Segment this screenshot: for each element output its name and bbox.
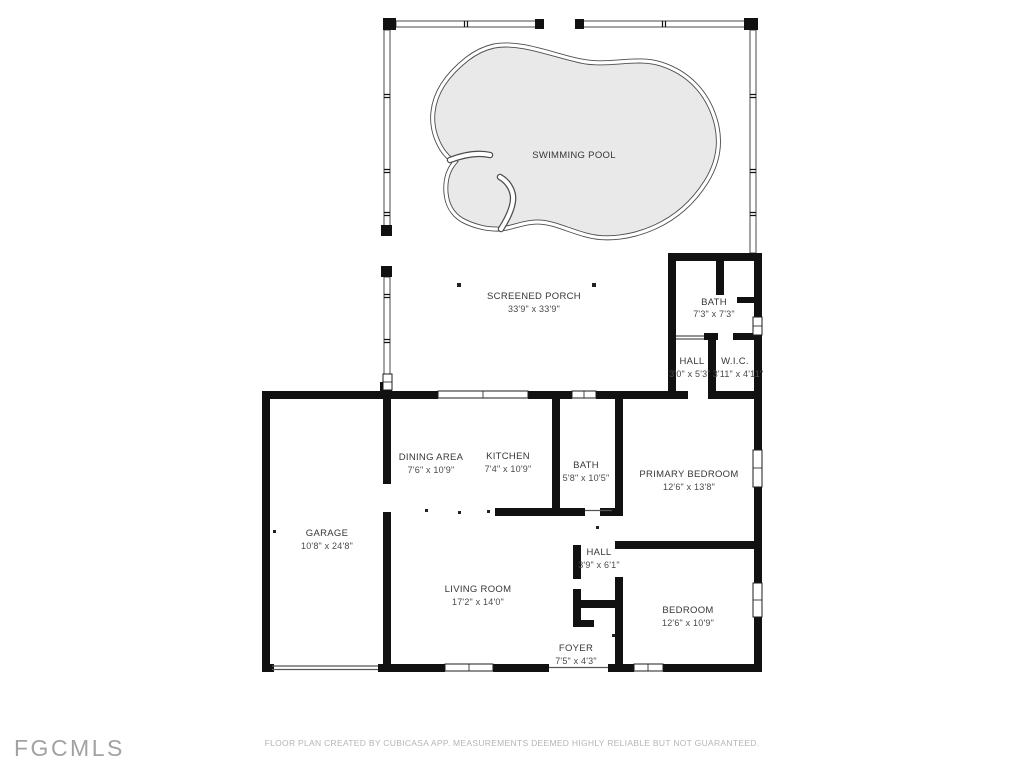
room-label-bath-upper: BATH: [701, 297, 727, 308]
wall-segment: [615, 391, 623, 516]
watermark-logo: FGCMLS: [14, 735, 125, 761]
room-dims-living-room: 17'2" x 14'0": [452, 597, 504, 607]
wall-segment: [262, 664, 274, 672]
screen-post: [744, 18, 758, 30]
door-jamb-stub: [737, 297, 756, 303]
wall-segment: [708, 333, 716, 399]
dot-marker: [596, 526, 599, 529]
wall-segment: [754, 391, 762, 451]
screen-wall: [583, 21, 745, 27]
wall-segment: [754, 616, 762, 672]
pool-outline: [433, 45, 719, 238]
wall-segment: [708, 391, 762, 399]
wall-segment: [754, 253, 762, 317]
window: [634, 664, 663, 671]
wall-segment: [663, 664, 762, 672]
room-label-dining-area: DINING AREA: [399, 452, 464, 463]
wall-segment: [528, 391, 572, 399]
room-label-screened-porch: SCREENED PORCH: [487, 291, 581, 302]
room-label-garage: GARAGE: [306, 528, 348, 539]
room-label-swimming-pool: SWIMMING POOL: [532, 150, 616, 161]
floor-plan-canvas: SWIMMING POOL SCREENED PORCH 33'9" x 33'…: [0, 0, 1024, 768]
screen-wall: [384, 30, 390, 226]
room-label-living-room: LIVING ROOM: [445, 584, 512, 595]
screen-post: [381, 266, 392, 277]
screen-post: [383, 18, 396, 30]
window: [572, 391, 596, 398]
sliding-door: [438, 391, 528, 398]
room-dims-kitchen: 7'4" x 10'9": [485, 464, 532, 474]
dot-marker: [425, 509, 428, 512]
disclaimer-text: FLOOR PLAN CREATED BY CUBICASA APP. MEAS…: [265, 738, 760, 748]
wall-segment: [552, 391, 560, 511]
wall-segment: [716, 253, 724, 295]
thin-lines: [272, 336, 704, 670]
wall-segment: [573, 620, 594, 627]
room-dims-garage: 10'8" x 24'8": [301, 541, 353, 551]
dot-marker: [457, 283, 461, 287]
window: [753, 317, 762, 335]
room-dims-wic: 3'11" x 4'11": [713, 369, 764, 379]
room-dims-hall-main: 3'9" x 6'1": [578, 560, 620, 570]
room-label-hall-main: HALL: [587, 547, 612, 558]
dot-marker: [458, 511, 461, 514]
room-labels: SWIMMING POOL SCREENED PORCH 33'9" x 33'…: [301, 150, 763, 666]
room-dims-hall-upper: 3'0" x 5'3": [669, 369, 711, 379]
floor-plan-page: SWIMMING POOL SCREENED PORCH 33'9" x 33'…: [0, 0, 1024, 768]
room-label-bedroom: BEDROOM: [662, 605, 713, 616]
room-dims-dining-area: 7'6" x 10'9": [408, 465, 455, 475]
room-label-primary-bedroom: PRIMARY BEDROOM: [639, 469, 738, 480]
room-dims-foyer: 7'5" x 4'3": [555, 656, 597, 666]
dot-marker: [487, 510, 490, 513]
wall-segment: [615, 577, 623, 672]
wall-segment: [600, 508, 616, 516]
room-label-kitchen: KITCHEN: [486, 451, 530, 462]
window: [445, 664, 493, 671]
wall-segment: [615, 541, 762, 549]
dot-marker: [273, 530, 276, 533]
room-dims-bedroom: 12'6" x 10'9": [662, 618, 714, 628]
wall-segment: [754, 335, 762, 399]
cased-opening-line: [676, 336, 704, 339]
room-label-wic: W.I.C.: [721, 356, 749, 367]
room-dims-bath-main: 5'8" x 10'5": [563, 473, 610, 483]
wall-segment: [573, 600, 619, 608]
wall-segment: [495, 508, 585, 516]
wall-segment: [383, 512, 391, 672]
window: [383, 374, 392, 390]
room-label-hall-upper: HALL: [680, 356, 705, 367]
wall-segment: [262, 391, 270, 672]
wall-segment: [754, 486, 762, 583]
room-label-bath-main: BATH: [573, 460, 599, 471]
dot-marker: [592, 283, 596, 287]
garage-door-line: [272, 666, 378, 670]
room-dims-bath-upper: 7'3" x 7'3": [693, 309, 735, 319]
room-dims-screened-porch: 33'9" x 33'9": [508, 304, 560, 314]
screen-wall: [396, 21, 536, 27]
dot-marker: [612, 634, 615, 637]
footer: FGCMLS FLOOR PLAN CREATED BY CUBICASA AP…: [14, 735, 759, 761]
window: [753, 450, 762, 487]
screen-wall: [384, 277, 390, 384]
wall-segment: [668, 253, 762, 261]
screen-wall: [750, 30, 756, 253]
screen-post: [381, 225, 392, 236]
screen-post: [535, 19, 544, 29]
swimming-pool-shape: [433, 45, 719, 238]
wall-segment: [493, 664, 549, 672]
screen-post: [575, 19, 584, 29]
room-dims-primary-bedroom: 12'6" x 13'8": [663, 482, 715, 492]
window: [753, 583, 762, 617]
wall-segment: [262, 391, 438, 399]
wall-segment: [383, 391, 391, 484]
room-label-foyer: FOYER: [559, 643, 593, 654]
